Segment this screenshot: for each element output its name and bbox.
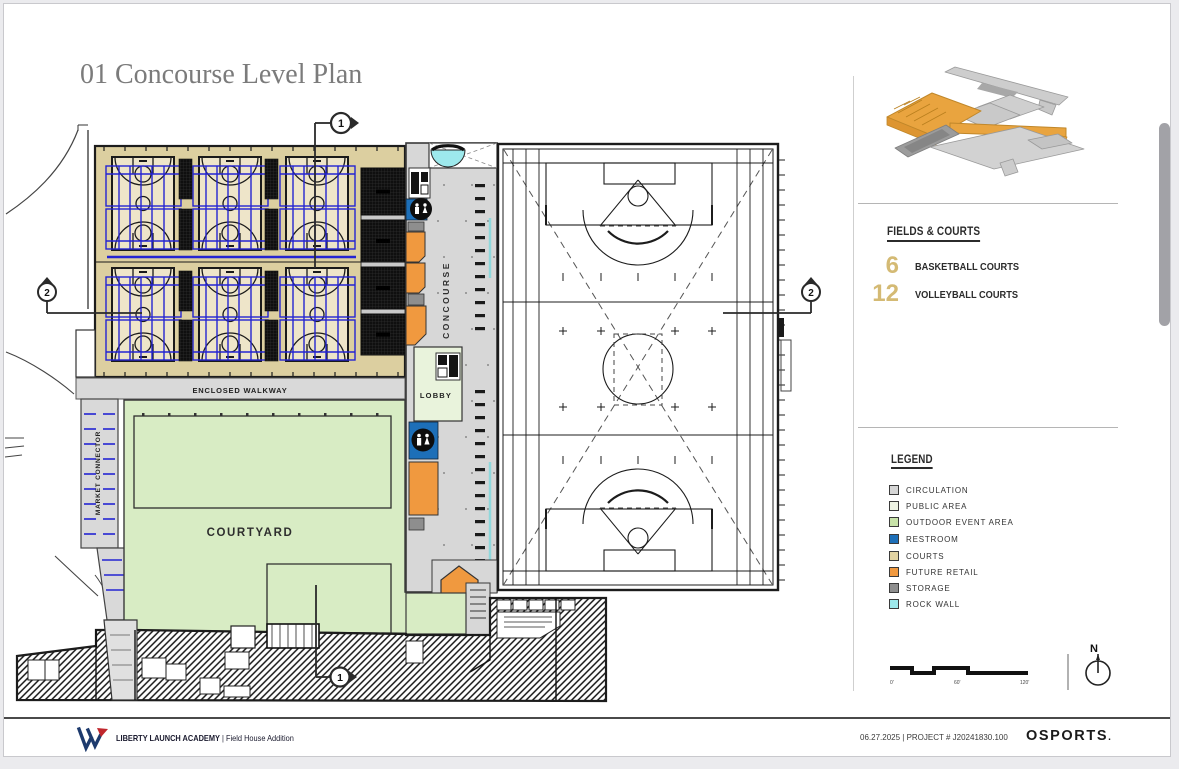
svg-text:COURTYARD: COURTYARD (207, 527, 294, 539)
svg-text:2: 2 (808, 288, 814, 299)
svg-text:MARKET CONNECTOR: MARKET CONNECTOR (95, 431, 102, 515)
svg-text:0': 0' (890, 680, 894, 686)
svg-text:CONCOURSE: CONCOURSE (441, 261, 451, 339)
svg-text:2: 2 (44, 288, 50, 299)
svg-text:N: N (1090, 643, 1098, 655)
svg-text:60': 60' (954, 680, 961, 686)
svg-text:120': 120' (1020, 680, 1029, 686)
svg-text:1: 1 (338, 118, 344, 130)
svg-text:1: 1 (337, 672, 343, 684)
svg-text:LOBBY: LOBBY (420, 391, 452, 400)
svg-text:ENCLOSED WALKWAY: ENCLOSED WALKWAY (192, 386, 287, 395)
